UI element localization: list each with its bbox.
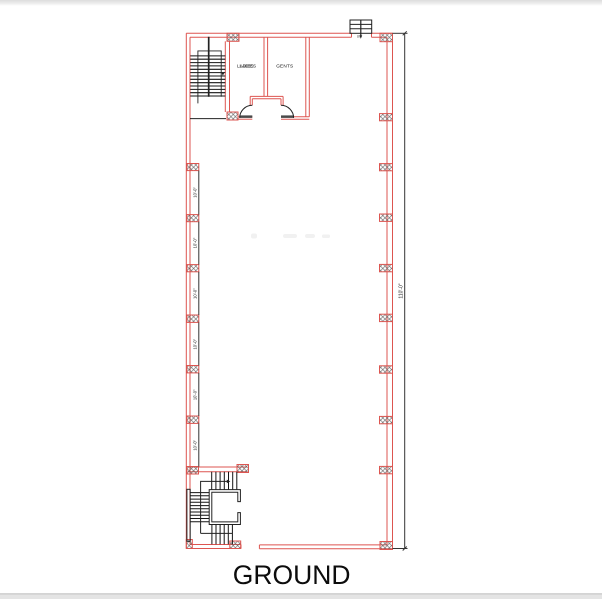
- svg-text:10'-0": 10'-0": [193, 439, 198, 450]
- svg-text:10'-0": 10'-0": [193, 237, 198, 248]
- svg-text:GROUND: GROUND: [233, 560, 351, 590]
- svg-text:GENTS: GENTS: [276, 64, 293, 69]
- svg-text:10'-0": 10'-0": [193, 389, 198, 400]
- svg-text:LADIES: LADIES: [240, 64, 257, 69]
- svg-text:10'-0": 10'-0": [193, 338, 198, 349]
- svg-text:10'-0": 10'-0": [193, 187, 198, 198]
- svg-text:UP: UP: [357, 35, 362, 39]
- svg-text:10'-0": 10'-0": [193, 288, 198, 299]
- svg-text:110'-0": 110'-0": [399, 283, 405, 298]
